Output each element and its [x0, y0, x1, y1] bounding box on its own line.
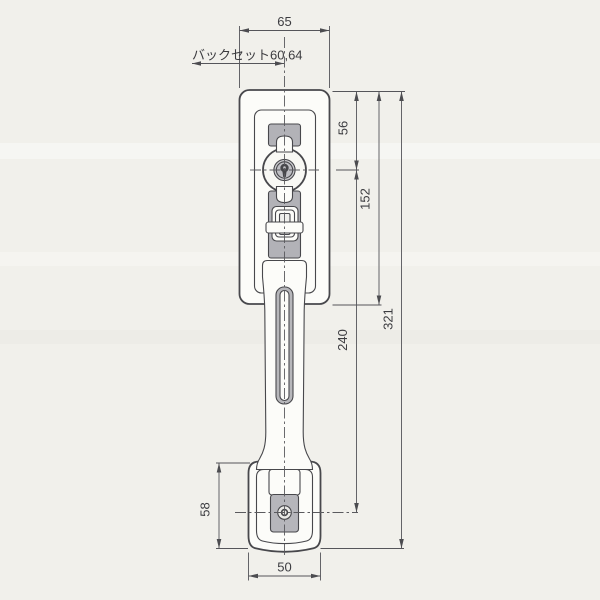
backset-label: バックセット60,64 [192, 48, 303, 63]
dim-top-width-label: 65 [277, 14, 291, 29]
dim-plate-height-label: 152 [358, 188, 373, 210]
dim-base-width-label: 50 [277, 560, 291, 575]
dim-overall-height-label: 321 [381, 308, 396, 330]
diagram-canvas: 65 バックセット60,64 56 240 152 [0, 0, 600, 600]
dim-cylinder-offset-label: 56 [336, 121, 351, 135]
dim-handle-pitch-label: 240 [335, 329, 350, 351]
dim-base-height-label: 58 [198, 502, 213, 516]
lockset-dimension-drawing: 65 バックセット60,64 56 240 152 [0, 0, 600, 600]
